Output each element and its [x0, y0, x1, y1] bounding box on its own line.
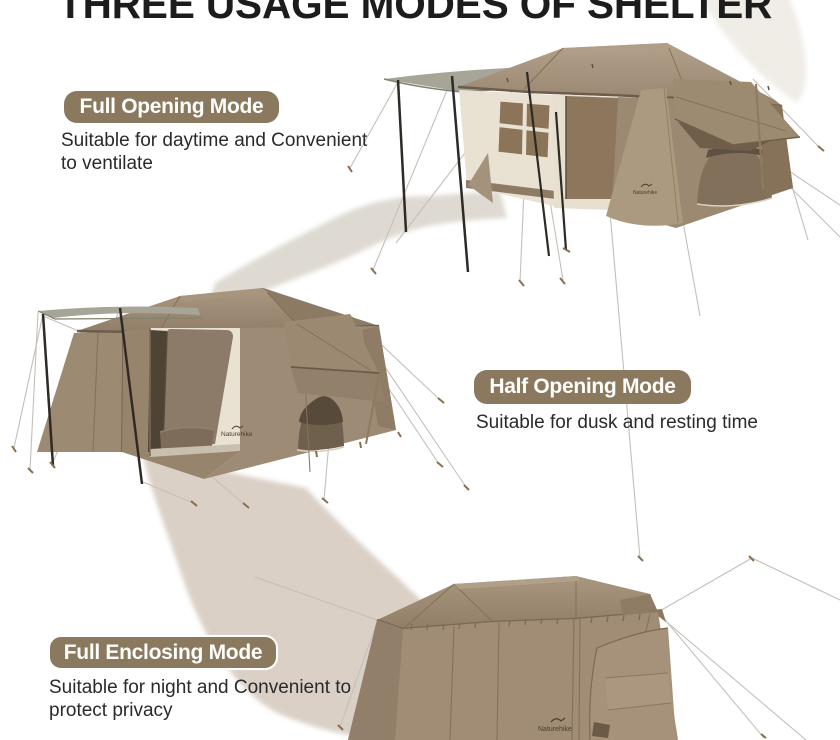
svg-text:Naturehike: Naturehike — [633, 190, 657, 196]
svg-text:Naturehike: Naturehike — [538, 726, 572, 733]
svg-text:Naturehike: Naturehike — [221, 431, 253, 438]
